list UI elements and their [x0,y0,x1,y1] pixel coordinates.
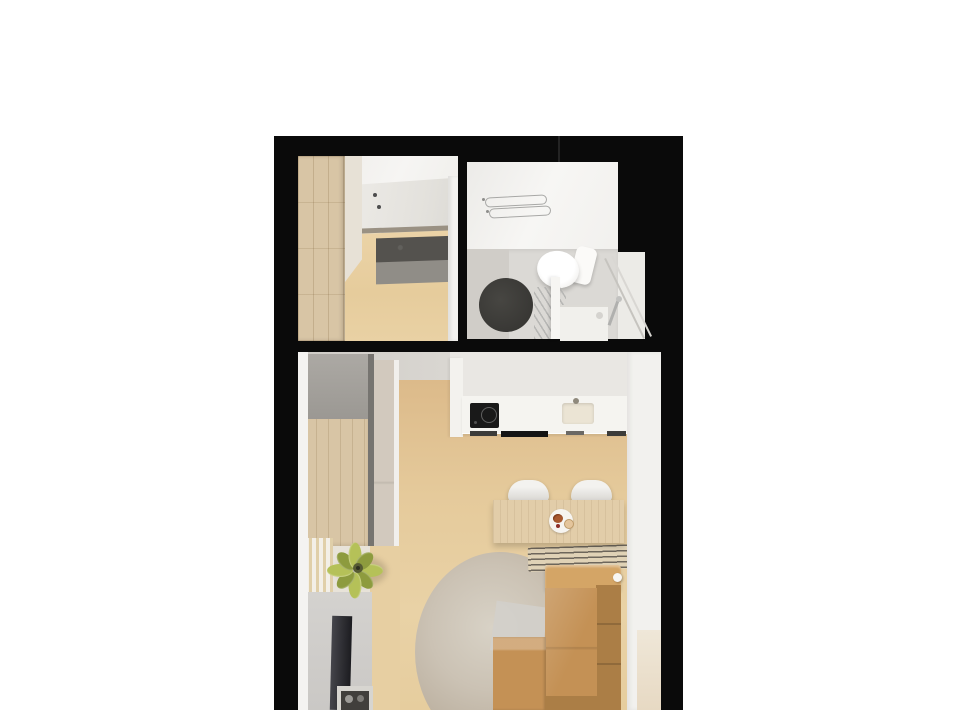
living-left-wall [298,352,308,710]
wardrobe-top [304,354,368,419]
wardrobe-side-panel [374,360,394,546]
sofa-chaise [493,637,546,710]
jam-dot [556,524,560,528]
kitchen-back-wall [450,352,627,397]
kitchen-sink [562,403,594,424]
potted-plant [334,544,386,596]
hob-burner-ring [481,407,497,423]
under-counter-shadow [470,431,497,436]
sofa-backrest [596,585,621,710]
sofa-seat [545,588,597,710]
floor-plan-canvas [0,0,960,710]
speaker-cone [345,695,353,703]
wardrobe-edge [394,360,399,546]
right-wall-reflection [637,630,661,710]
sofa-bottom-cushion [545,696,621,710]
sink-tap [573,398,579,404]
speaker-cone [357,695,364,702]
oven-front [501,431,548,437]
coffee-cup [564,519,574,529]
wardrobe-cabinet [304,419,368,546]
hob-control [474,421,477,424]
croissant [553,514,563,523]
under-counter-shadow [607,431,626,436]
living-room [0,0,960,710]
plant-center [353,563,363,573]
under-counter-shadow [566,431,584,435]
door-knob [613,573,622,582]
